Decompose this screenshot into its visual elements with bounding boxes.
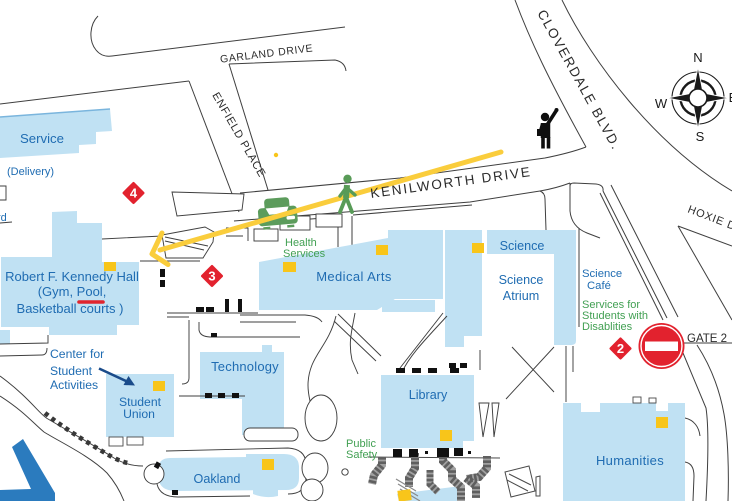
svg-text:W: W [655,96,668,111]
svg-text:Science: Science [582,268,622,280]
svg-text:Science: Science [499,273,544,287]
svg-text:rd: rd [0,212,7,224]
svg-text:Science: Science [500,239,545,253]
svg-text:Library: Library [409,388,448,402]
svg-text:4: 4 [130,186,138,201]
svg-text:3: 3 [208,269,215,284]
svg-text:2: 2 [617,341,624,356]
svg-text:Student: Student [50,364,93,378]
svg-text:Services: Services [283,248,326,260]
svg-text:Center for: Center for [50,347,104,361]
svg-text:GATE 2: GATE 2 [687,333,727,345]
svg-text:Atrium: Atrium [503,289,539,303]
svg-text:Service: Service [20,131,64,146]
svg-text:Oakland: Oakland [194,472,241,486]
svg-text:Medical Arts: Medical Arts [316,269,392,284]
svg-text:Humanities: Humanities [596,453,664,468]
svg-text:N: N [693,50,702,65]
svg-text:Union: Union [123,407,155,421]
svg-text:Disablities: Disablities [582,321,633,333]
svg-text:Basketball courts ): Basketball courts ) [17,301,124,316]
svg-text:S: S [696,129,705,144]
svg-text:(Delivery): (Delivery) [7,166,54,178]
svg-text:Technology: Technology [211,359,279,374]
svg-text:(Gym, Pool,: (Gym, Pool, [38,284,107,299]
svg-text:Robert F. Kennedy Hall: Robert F. Kennedy Hall [5,269,139,284]
svg-text:Activities: Activities [50,378,98,392]
svg-text:Café: Café [587,280,611,292]
svg-text:E: E [729,90,732,105]
svg-text:Safety: Safety [346,449,378,461]
